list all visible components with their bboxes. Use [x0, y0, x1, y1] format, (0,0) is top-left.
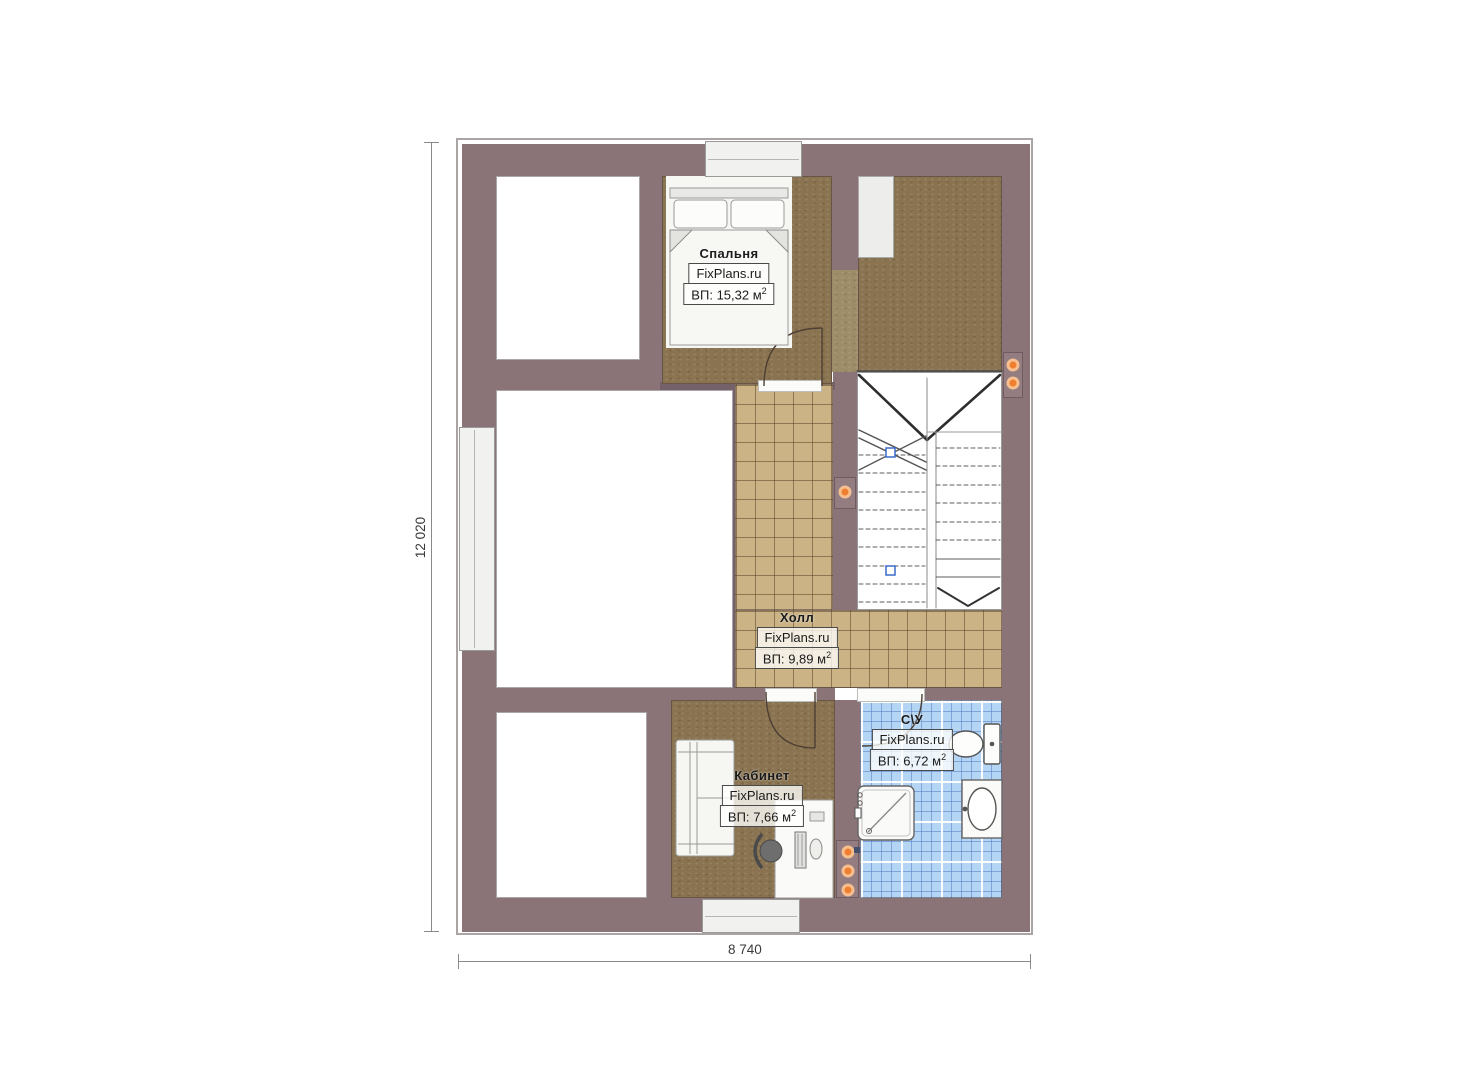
- room-bottomleft: [496, 712, 647, 898]
- watermark-box: FixPlans.ru: [756, 627, 837, 648]
- watermark-box: FixPlans.ru: [721, 785, 802, 806]
- vertical-dimension-tick-bottom: [424, 931, 439, 932]
- wall-bedroom-right-stub: [832, 176, 858, 270]
- vertical-dimension-label: 12 020: [413, 517, 428, 558]
- watermark-box: FixPlans.ru: [871, 729, 952, 750]
- wall-right: [1002, 176, 1030, 898]
- wall-office-top-right: [817, 688, 835, 700]
- hall-floor-vertical: [735, 384, 833, 610]
- area-box: ВП: 6,72 м2: [870, 749, 954, 771]
- room-name: С\У: [870, 712, 954, 727]
- wall-bedroom-left: [640, 176, 662, 362]
- area-box: ВП: 9,89 м2: [755, 647, 839, 669]
- bathroom-door-opening: [857, 688, 925, 702]
- light-panel-hall: [834, 477, 856, 509]
- light-panel-topright: [1003, 352, 1023, 398]
- watermark-box: FixPlans.ru: [688, 263, 769, 284]
- horizontal-dimension-tick-right: [1030, 954, 1031, 969]
- light-panel-office-bath: [836, 840, 859, 898]
- hall-label: Холл FixPlans.ru ВП: 9,89 м2: [755, 610, 839, 669]
- bedroom-label: Спальня FixPlans.ru ВП: 15,32 м2: [683, 246, 774, 305]
- room-name: Спальня: [683, 246, 774, 261]
- room-topleft: [496, 176, 640, 360]
- window-bottom: [702, 899, 800, 933]
- horizontal-dimension-line: [458, 961, 1031, 962]
- room-name: Кабинет: [720, 768, 804, 783]
- office-door-opening: [765, 688, 817, 702]
- horizontal-dimension-label: 8 740: [728, 942, 762, 957]
- wall-bath-top: [925, 688, 1002, 700]
- passage-floor: [832, 270, 858, 372]
- area-box: ВП: 7,66 м2: [720, 805, 804, 827]
- wall-office-left: [647, 700, 671, 898]
- window-left: [459, 427, 495, 651]
- vertical-dimension-tick-top: [424, 142, 439, 143]
- floor-plan-canvas: 12 020 8 740: [0, 0, 1474, 1080]
- closet-niche: [858, 176, 894, 258]
- bathroom-label: С\У FixPlans.ru ВП: 6,72 м2: [870, 712, 954, 771]
- wall-midleft-bottom: [462, 688, 662, 712]
- wall-office-top-left: [662, 688, 765, 700]
- room-midleft: [496, 390, 733, 688]
- office-label: Кабинет FixPlans.ru ВП: 7,66 м2: [720, 768, 804, 827]
- bedroom-door-opening: [758, 380, 822, 392]
- room-name: Холл: [755, 610, 839, 625]
- stairwell: [857, 372, 1002, 610]
- vertical-dimension-line: [431, 142, 432, 932]
- area-box: ВП: 15,32 м2: [683, 283, 774, 305]
- horizontal-dimension-tick-left: [458, 954, 459, 969]
- window-top: [705, 141, 802, 177]
- wall-under-topleft-room: [462, 360, 662, 390]
